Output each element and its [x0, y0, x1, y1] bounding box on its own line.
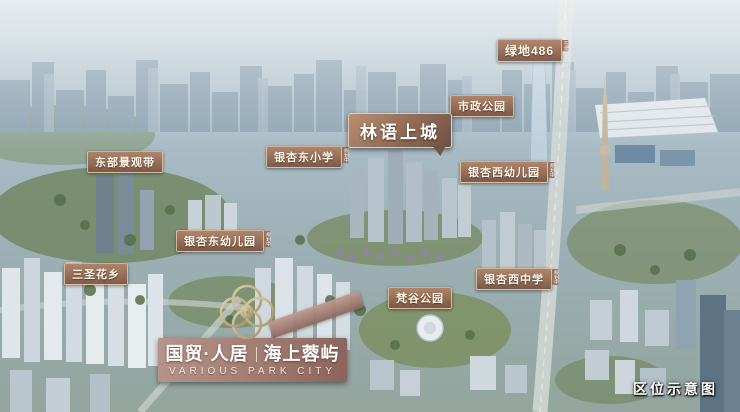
label-note: 在建 [562, 40, 568, 51]
label-text: 梵谷公园 [396, 293, 444, 305]
label-note: 规划中 [548, 162, 554, 178]
label-municipal-park: 市政公园 [450, 95, 514, 117]
brand-banner: 国贸·人居 海上蓉屿 VARIOUS PARK CITY [158, 338, 347, 382]
label-text: 银杏西中学 [484, 274, 544, 286]
label-text: 银杏西幼儿园 [468, 167, 540, 179]
label-text: 市政公园 [458, 101, 506, 113]
label-text: 东部景观带 [95, 157, 155, 169]
label-text: 银杏东幼儿园 [184, 236, 256, 248]
label-note: 规划中 [552, 269, 558, 285]
brand-right: 海上蓉屿 [264, 345, 340, 365]
label-east-landscape-belt: 东部景观带 [87, 151, 163, 173]
label-fangu-park: 梵谷公园 [388, 287, 452, 309]
brand-left: 国贸·人居 [166, 345, 249, 365]
label-greenland-486: 绿地486 在建 [497, 39, 562, 62]
label-yinxing-west-kindergarten: 银杏西幼儿园 规划中 [460, 161, 548, 183]
brand-divider [256, 347, 257, 362]
park-pavilion [417, 315, 443, 341]
aerial-city-background [0, 0, 740, 412]
label-yinxing-west-middle: 银杏西中学 规划中 [476, 268, 552, 290]
label-note: 规划中 [264, 231, 270, 247]
label-linyu-shangcheng: 林语上城 [348, 113, 452, 148]
brand-emblem-icon [216, 282, 278, 342]
label-yinxing-east-primary: 银杏东小学 规划中 [266, 146, 342, 168]
label-sansheng-flower-town: 三圣花乡 [64, 263, 128, 285]
label-text: 银杏东小学 [274, 152, 334, 164]
map-caption: 区位示意图 [633, 379, 718, 399]
brand-name-cn: 国贸·人居 海上蓉屿 [166, 345, 340, 365]
label-yinxing-east-kindergarten: 银杏东幼儿园 规划中 [176, 230, 264, 252]
label-text: 三圣花乡 [72, 269, 120, 281]
label-note: 规划中 [342, 147, 348, 163]
brand-name-en: VARIOUS PARK CITY [169, 366, 336, 377]
label-text: 绿地486 [505, 44, 554, 58]
label-text: 林语上城 [360, 123, 440, 142]
location-map: 绿地486 在建 市政公园 林语上城 东部景观带 银杏东小学 规划中 银杏西幼儿… [0, 0, 740, 412]
